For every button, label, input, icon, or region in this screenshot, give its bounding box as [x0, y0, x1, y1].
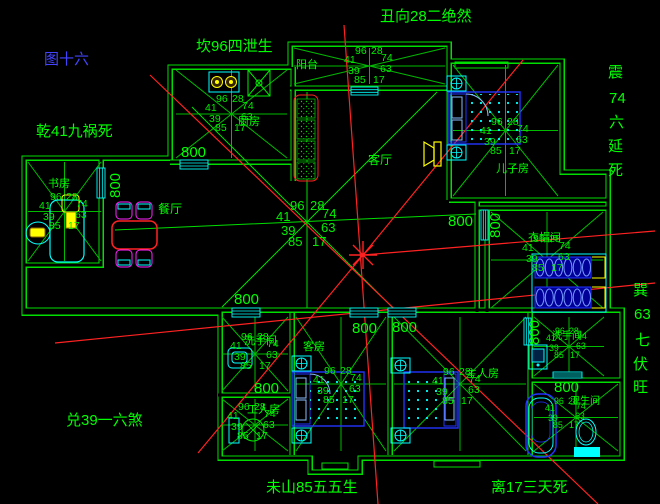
dimension-label-9: 800	[554, 379, 579, 396]
annotation-figure-number: 图十六	[44, 51, 89, 68]
annotation-kan: 坎96四泄生	[196, 38, 273, 55]
compass-bathroom-s1: 85	[553, 420, 563, 430]
compass-washroom-right-n1: 96	[555, 326, 565, 336]
dimension-label-6: 800	[487, 213, 504, 238]
compass-guest-room-s2: 17	[342, 394, 354, 406]
compass-washroom-left-s1: 85	[240, 360, 252, 372]
compass-balcony-s1: 85	[354, 74, 366, 86]
annotation-xun-4: 旺	[633, 379, 648, 396]
cabinet-icon	[294, 95, 318, 181]
compass-sons-room-s2: 17	[509, 145, 521, 157]
compass-kitchen-s2: 17	[234, 122, 246, 134]
compass-master-room-s1: 85	[442, 395, 454, 407]
dimension-label-1: 800	[107, 173, 124, 198]
annotation-xun-2: 七	[635, 332, 650, 349]
compass-study-n1: 96	[50, 191, 62, 203]
dimension-label-5: 800	[448, 213, 473, 230]
window	[351, 87, 378, 95]
annotation-zhen-0: 震	[608, 64, 623, 81]
annotation-xun-1: 63	[634, 306, 651, 323]
compass-main-e: 74	[322, 206, 337, 221]
compass-cloakroom-s1: 85	[532, 262, 544, 274]
room-label-guest-room: 客房	[303, 339, 325, 353]
compass-main-w: 41	[276, 209, 291, 224]
room-label-dining: 餐厅	[158, 201, 182, 216]
annotation-wei: 未山85五五生	[266, 479, 358, 496]
window	[388, 308, 416, 317]
compass-bathroom-e: 74	[576, 401, 586, 411]
compass-study-s1: 85	[49, 220, 61, 232]
dimension-label-0: 800	[181, 144, 206, 161]
floorplan-canvas[interactable]: 图十六丑向28二绝然坎96四泄生乾41九祸死兑39一六煞未山85五五生离17三天…	[0, 0, 660, 504]
compass-maid-room-s1: 85	[237, 430, 249, 442]
compass-balcony-s2: 17	[373, 74, 385, 86]
compass-kitchen-s1: 85	[215, 122, 227, 134]
annotation-li: 离17三天死	[491, 479, 568, 496]
compass-main-n1: 96	[290, 198, 305, 213]
annotation-zhen-3: 延	[608, 138, 623, 155]
compass-kitchen-n1: 96	[216, 93, 228, 105]
compass-study-s2: 17	[68, 220, 80, 232]
window	[553, 372, 582, 378]
compass-washroom-left-s2: 17	[259, 360, 271, 372]
annotation-xun-3: 伏	[633, 356, 648, 373]
annotation-zhen-4: 死	[608, 162, 623, 179]
compass-maid-room-n1: 96	[238, 401, 250, 413]
window	[180, 160, 208, 169]
compass-bathroom-s2: 17	[569, 420, 579, 430]
compass-guest-room-s1: 85	[323, 394, 335, 406]
dimension-label-7: 800	[254, 380, 279, 397]
compass-guest-room-n1: 96	[324, 365, 336, 377]
compass-maid-room-s2: 17	[256, 430, 268, 442]
room-label-study: 书房	[48, 177, 70, 190]
compass-washroom-right-s2: 17	[570, 350, 580, 360]
compass-master-room-s2: 17	[461, 395, 473, 407]
annotation-dui: 兑39一六煞	[66, 412, 143, 429]
dimension-label-8: 800	[526, 320, 543, 345]
red-star	[349, 241, 377, 269]
dimension-label-2: 800	[234, 291, 259, 308]
compass-balcony-n1: 96	[355, 45, 367, 57]
compass-bathroom-n1: 96	[554, 396, 564, 406]
window	[350, 308, 378, 317]
annotation-xun-0: 巽	[633, 282, 648, 299]
room-label-balcony: 阳台	[296, 57, 318, 71]
annotation-zhen-1: 74	[609, 90, 626, 107]
compass-master-room-n1: 96	[443, 366, 455, 378]
floorplan-drawing: 图十六丑向28二绝然坎96四泄生乾41九祸死兑39一六煞未山85五五生离17三天…	[0, 0, 660, 504]
compass-bathroom-w: 41	[545, 403, 555, 413]
window	[232, 308, 260, 317]
compass-washroom-right-e: 74	[577, 331, 587, 341]
dimension-label-4: 800	[392, 319, 417, 336]
compass-main-s1: 85	[288, 234, 303, 249]
compass-washroom-left-n1: 96	[241, 331, 253, 343]
room-label-living: 客厅	[368, 152, 392, 167]
compass-cloakroom-n1: 96	[533, 233, 545, 245]
compass-main-se: 63	[321, 220, 336, 235]
compass-main-s2: 17	[312, 234, 327, 249]
window	[97, 168, 105, 198]
room-label-sons-room: 儿子房	[496, 162, 529, 175]
compass-sons-room-s1: 85	[490, 145, 502, 157]
compass-washroom-right-s1: 85	[554, 350, 564, 360]
annotation-qian: 乾41九祸死	[36, 123, 113, 140]
compass-sons-room-n1: 96	[491, 116, 503, 128]
annotation-top-direction: 丑向28二绝然	[380, 8, 472, 25]
annotation-zhen-2: 六	[609, 114, 624, 131]
compass-cloakroom-s2: 17	[551, 262, 563, 274]
dimension-label-3: 800	[352, 320, 377, 337]
compass-washroom-right-w: 41	[546, 333, 556, 343]
